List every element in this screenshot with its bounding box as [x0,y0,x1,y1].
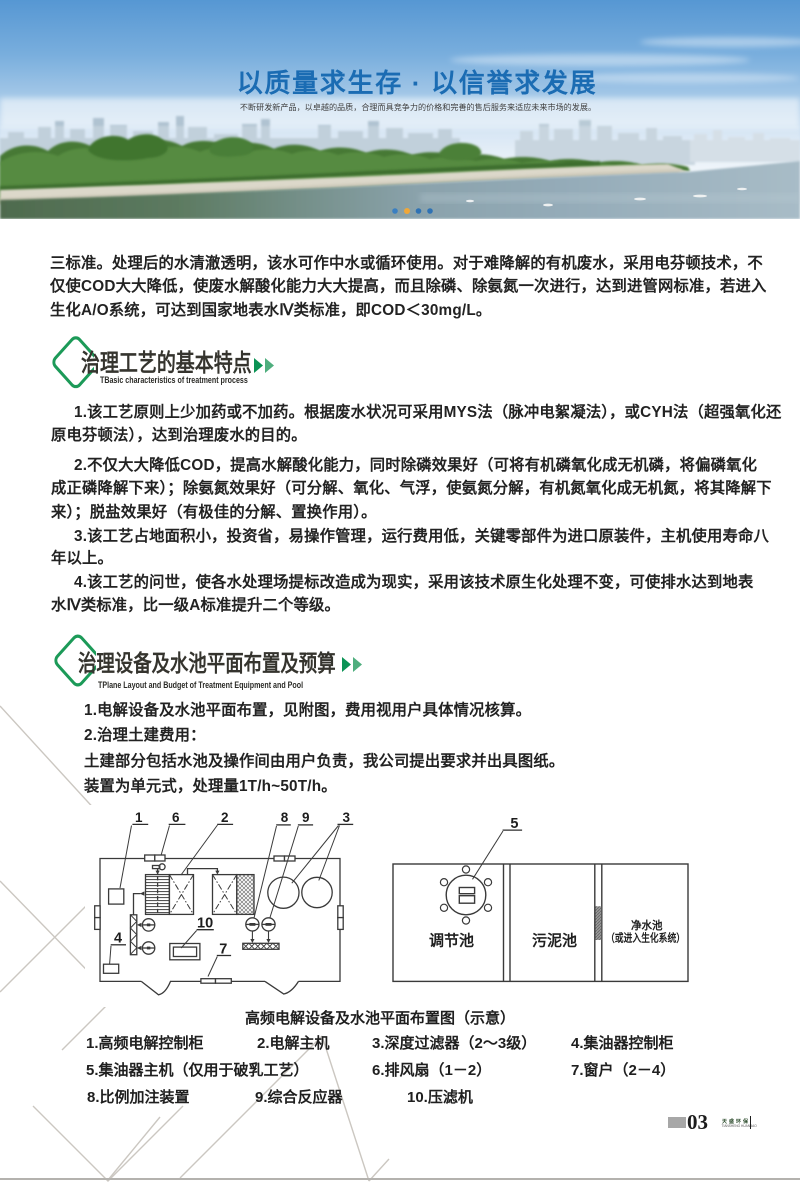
svg-text:3: 3 [343,810,351,825]
svg-text:污泥池: 污泥池 [532,932,577,950]
svg-text:调节池: 调节池 [429,932,474,950]
svg-text:（或进入生化系统）: （或进入生化系统） [606,931,685,945]
svg-text:4: 4 [114,931,122,947]
svg-text:净水池: 净水池 [631,918,663,932]
svg-text:6: 6 [172,810,180,825]
svg-text:9: 9 [302,810,310,825]
svg-text:8: 8 [281,810,289,825]
svg-text:1: 1 [135,810,143,825]
svg-text:2: 2 [221,810,229,825]
